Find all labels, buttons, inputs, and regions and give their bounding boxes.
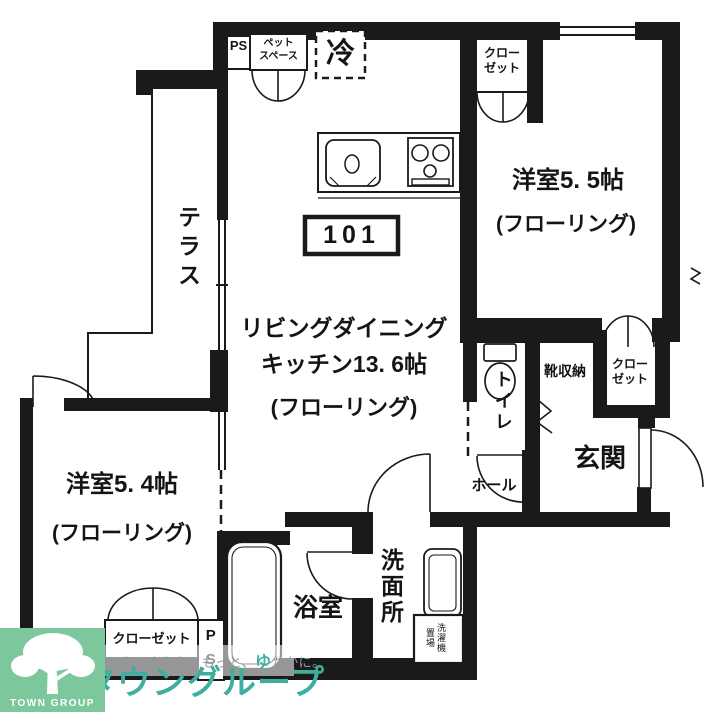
ldk-label-line2: キッチン13. 6帖 <box>238 351 450 377</box>
washroom-label: 洗面所 <box>377 548 403 626</box>
unit-number: 101 <box>305 221 398 250</box>
room54-flooring-label: (フローリング) <box>30 522 214 546</box>
vanity-sink-icon <box>424 549 461 617</box>
closet-entry-door-arc <box>602 316 654 347</box>
kitchen-sink-icon <box>326 140 380 186</box>
ldk-flooring-label: (フローリング) <box>238 395 450 420</box>
washroom-door-arc <box>368 454 430 512</box>
town-group-logo: TOWN GROUP <box>0 628 105 712</box>
bathroom-door-arc <box>307 552 352 599</box>
room54-label: 洋室5. 4帖 <box>36 471 208 499</box>
closet54-door-arc <box>108 588 198 621</box>
bathroom-label: 浴室 <box>282 594 354 623</box>
floorplan-page: PS ペット スペース 冷 クロー ゼット 洋室5. 5帖 (フローリング) テ… <box>0 0 721 712</box>
brand-text: タウングループ <box>82 655 312 704</box>
entrance-label: 玄関 <box>560 444 640 474</box>
room55-label: 洋室5. 5帖 <box>488 167 648 195</box>
tree-icon <box>0 628 105 698</box>
refrigerator-label: 冷 <box>316 38 365 71</box>
gas-stove-icon <box>408 138 453 186</box>
closet-entry-label: クロー ゼット <box>605 357 655 387</box>
entrance-door-leaf <box>639 428 651 488</box>
toilet-label: トイレ <box>492 370 513 433</box>
shoe-storage-label: 靴収納 <box>537 363 593 379</box>
ldk-label-line1: リビングダイニング <box>238 315 450 341</box>
logo-text: TOWN GROUP <box>0 698 105 709</box>
terrace-label: テラス <box>174 205 200 292</box>
wall-break-zigzag <box>691 268 700 284</box>
hall-label: ホール <box>463 477 525 494</box>
kitchen-counter <box>318 133 460 198</box>
pet-door-arc <box>252 70 305 101</box>
ps-top-label: PS <box>227 38 250 53</box>
laundry-label: 洗濯機置場 <box>424 619 446 657</box>
room55-flooring-label: (フローリング) <box>480 213 652 237</box>
closet55-door-arc <box>477 92 529 122</box>
terrace-boundary <box>88 89 152 398</box>
closet-room55-label: クロー ゼット <box>477 46 527 76</box>
pet-space-label: ペット スペース <box>250 37 307 63</box>
entrance-door-arc <box>651 430 703 487</box>
